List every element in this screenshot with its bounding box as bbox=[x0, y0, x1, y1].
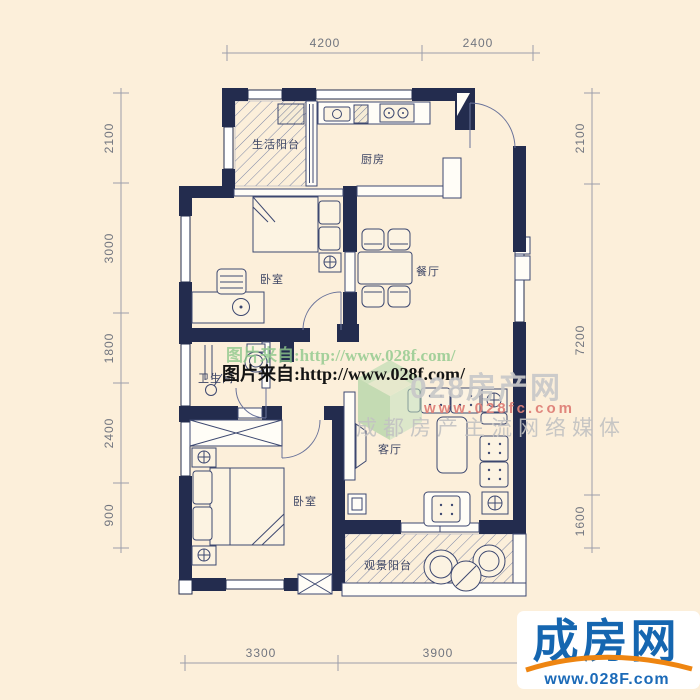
dining-chair bbox=[362, 286, 384, 307]
wall-segment bbox=[222, 88, 248, 101]
window-sill bbox=[179, 580, 192, 594]
window bbox=[181, 216, 190, 282]
pillow bbox=[319, 201, 340, 224]
wall-segment bbox=[479, 520, 526, 534]
label-kitchen: 厨房 bbox=[361, 153, 385, 166]
dim-bottom-2: 3900 bbox=[423, 646, 454, 660]
wall-segment bbox=[412, 88, 457, 101]
balustrade bbox=[342, 583, 526, 596]
wall-segment bbox=[186, 406, 238, 420]
shower-drain bbox=[206, 385, 217, 396]
window bbox=[224, 127, 233, 169]
kitchen-fixtures bbox=[318, 102, 430, 124]
floorplan-drawing: 生活阳台 厨房 卧室 餐厅 卫生间 客厅 卧室 观景阳台 4200 2400 2… bbox=[0, 0, 700, 700]
dim-top-1: 4200 bbox=[310, 36, 341, 50]
window bbox=[248, 90, 282, 99]
pillow bbox=[193, 507, 212, 540]
pillow bbox=[193, 471, 212, 504]
entry-door bbox=[470, 103, 515, 148]
wall-segment bbox=[332, 406, 345, 520]
media-unit bbox=[348, 494, 366, 514]
sofa-seat bbox=[480, 462, 508, 487]
dim-left-4: 2400 bbox=[102, 418, 116, 449]
site-logo-url: www.028F.com bbox=[543, 671, 669, 688]
dimension-right: 2100 7200 1600 bbox=[573, 88, 600, 553]
window bbox=[226, 580, 284, 589]
wall-segment bbox=[222, 101, 235, 127]
wall-segment bbox=[513, 146, 526, 252]
ac-ledge bbox=[515, 256, 530, 280]
window bbox=[181, 422, 190, 476]
dim-right-2: 7200 bbox=[573, 325, 587, 356]
balcony-slider bbox=[306, 101, 317, 186]
breakfast-bar bbox=[357, 186, 445, 196]
dim-left-1: 2100 bbox=[102, 123, 116, 154]
label-bedroom-top: 卧室 bbox=[260, 272, 284, 286]
label-dining: 餐厅 bbox=[416, 264, 440, 278]
dining-table bbox=[358, 252, 412, 284]
wall-segment bbox=[345, 520, 401, 534]
dimension-left: 2100 3000 1800 2400 900 bbox=[102, 88, 129, 553]
pillow bbox=[319, 227, 340, 250]
partition bbox=[234, 189, 343, 196]
dim-right-1: 2100 bbox=[573, 123, 587, 154]
bed bbox=[253, 197, 318, 252]
partition bbox=[345, 252, 355, 292]
bedroom-bottom-door bbox=[282, 420, 320, 458]
floorplan-page: 生活阳台 厨房 卧室 餐厅 卫生间 客厅 卧室 观景阳台 4200 2400 2… bbox=[0, 0, 700, 700]
dim-left-2: 3000 bbox=[102, 233, 116, 264]
desk bbox=[192, 292, 264, 323]
balustrade bbox=[513, 534, 526, 583]
dining-set bbox=[358, 229, 412, 307]
site-logo: 成房网 www.028F.com bbox=[517, 611, 700, 689]
watermark-url-shadow: 图片来自:http://www.028f.com/ bbox=[226, 345, 456, 365]
dim-right-3: 1600 bbox=[573, 506, 587, 537]
wall-segment bbox=[332, 520, 345, 583]
label-view-balcony: 观景阳台 bbox=[364, 558, 412, 572]
wall-segment bbox=[192, 578, 226, 591]
watermark-tagline: 成都房产主流网络媒体 bbox=[356, 417, 626, 440]
dim-top-2: 2400 bbox=[463, 36, 494, 50]
label-bedroom-bottom: 卧室 bbox=[293, 494, 317, 508]
wall-block bbox=[337, 324, 359, 342]
dimension-top: 4200 2400 bbox=[222, 36, 540, 61]
wall-segment bbox=[179, 476, 192, 580]
bedroom-bottom-furniture bbox=[190, 420, 284, 565]
dimension-bottom: 3300 3900 bbox=[180, 646, 545, 671]
washer-unit bbox=[278, 104, 304, 124]
kitchen-appliance bbox=[354, 105, 368, 123]
dining-chair bbox=[388, 286, 410, 307]
entry-niche bbox=[443, 158, 461, 198]
dim-left-3: 1800 bbox=[102, 333, 116, 364]
stove bbox=[380, 104, 414, 122]
tv-cabinet bbox=[344, 392, 355, 480]
watermark-texts: 图片来自:http://www.028f.com/ 图片来自:http://ww… bbox=[222, 345, 626, 440]
label-service-balcony: 生活阳台 bbox=[252, 137, 300, 151]
wall-segment bbox=[186, 328, 310, 342]
wall-segment bbox=[282, 88, 316, 101]
bed bbox=[210, 468, 284, 545]
dining-chair bbox=[362, 229, 384, 250]
armchair-seat bbox=[432, 496, 460, 522]
wall-segment bbox=[343, 186, 357, 252]
dining-chair bbox=[388, 229, 410, 250]
window bbox=[181, 344, 190, 406]
watermark-brand-url: www.028fc.com bbox=[423, 400, 575, 417]
wall-segment bbox=[186, 186, 234, 198]
dim-left-5: 900 bbox=[102, 503, 116, 526]
dim-bottom-1: 3300 bbox=[246, 646, 277, 660]
bedroom-top-furniture bbox=[192, 197, 341, 323]
window bbox=[316, 90, 412, 99]
label-living: 客厅 bbox=[378, 442, 402, 456]
wall-segment bbox=[284, 578, 298, 591]
bedroom-top-door bbox=[303, 292, 341, 330]
